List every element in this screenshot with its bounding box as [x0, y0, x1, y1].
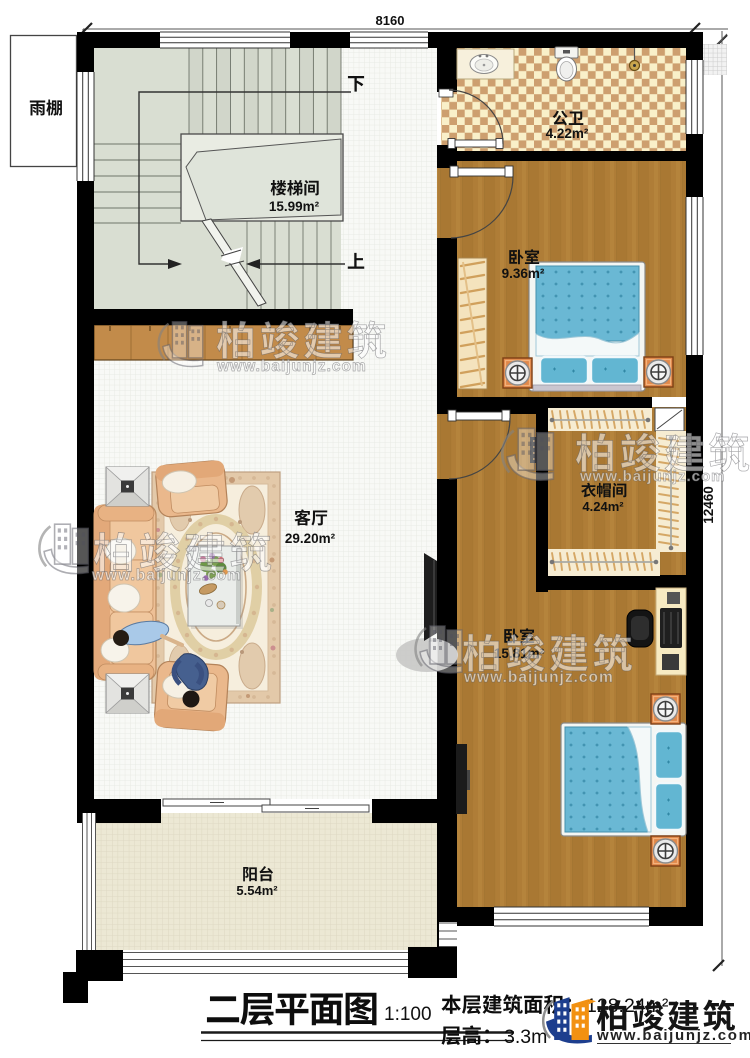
svg-text:1:100: 1:100	[384, 1004, 432, 1025]
svg-text:29.20m²: 29.20m²	[285, 531, 336, 546]
svg-text:www.baijunjz.com: www.baijunjz.com	[579, 468, 725, 485]
svg-text:12460: 12460	[701, 486, 716, 524]
svg-text:www.baijunjz.com: www.baijunjz.com	[463, 669, 614, 686]
svg-text:15.99m²: 15.99m²	[269, 199, 320, 214]
svg-text:4.24m²: 4.24m²	[582, 499, 624, 514]
svg-text:9.36m²: 9.36m²	[502, 266, 545, 281]
svg-text:www.baijunjz.com: www.baijunjz.com	[91, 567, 242, 584]
svg-text:www.baijunjz.com: www.baijunjz.com	[216, 358, 367, 375]
svg-text:5.54m²: 5.54m²	[236, 883, 278, 898]
svg-text:www.baijunjz.com: www.baijunjz.com	[596, 1027, 750, 1044]
svg-text:4.22m²: 4.22m²	[546, 126, 589, 141]
svg-text:8160: 8160	[376, 13, 405, 28]
svg-text:3.3m: 3.3m	[504, 1026, 547, 1048]
